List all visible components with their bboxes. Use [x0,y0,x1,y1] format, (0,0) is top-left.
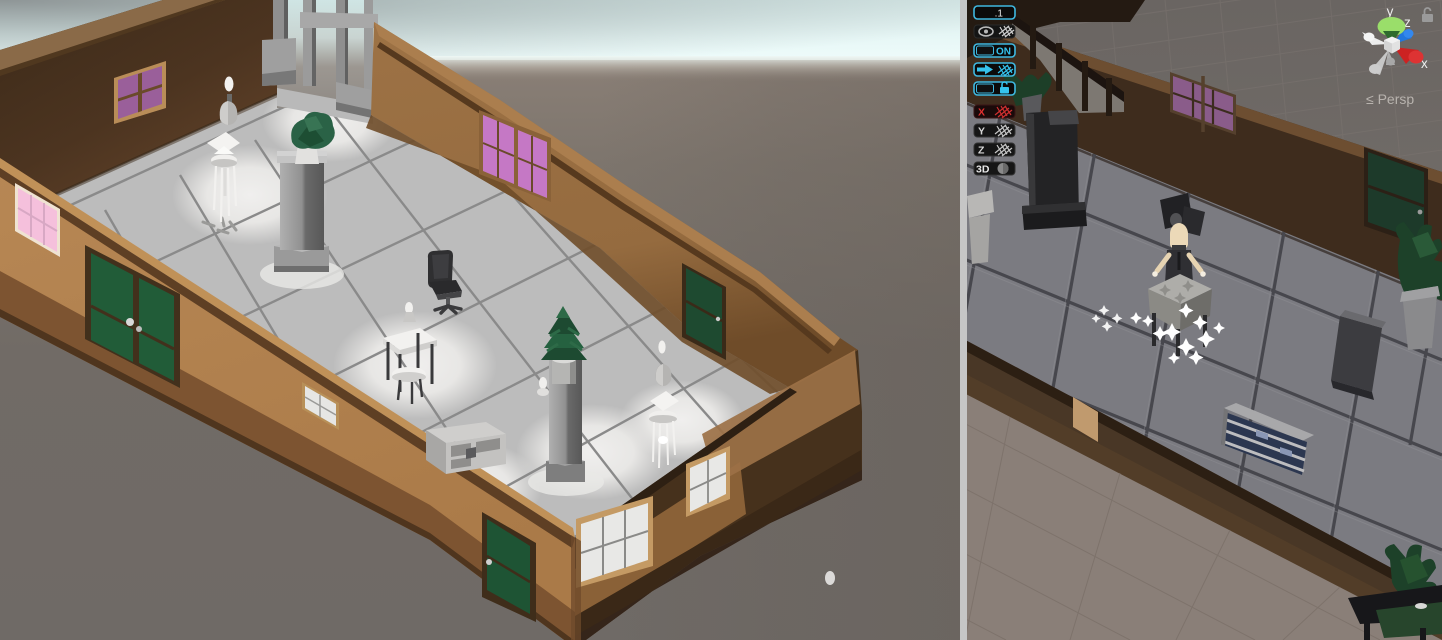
svg-text:X: X [978,107,985,119]
svg-text:3D: 3D [976,164,990,176]
svg-text:Y: Y [978,126,985,138]
svg-text:≤ Persp: ≤ Persp [1366,91,1414,107]
svg-text:Z: Z [978,145,985,157]
svg-text:.1: .1 [995,9,1004,20]
svg-text:ON: ON [996,47,1011,58]
svg-text:y: y [1387,4,1394,19]
